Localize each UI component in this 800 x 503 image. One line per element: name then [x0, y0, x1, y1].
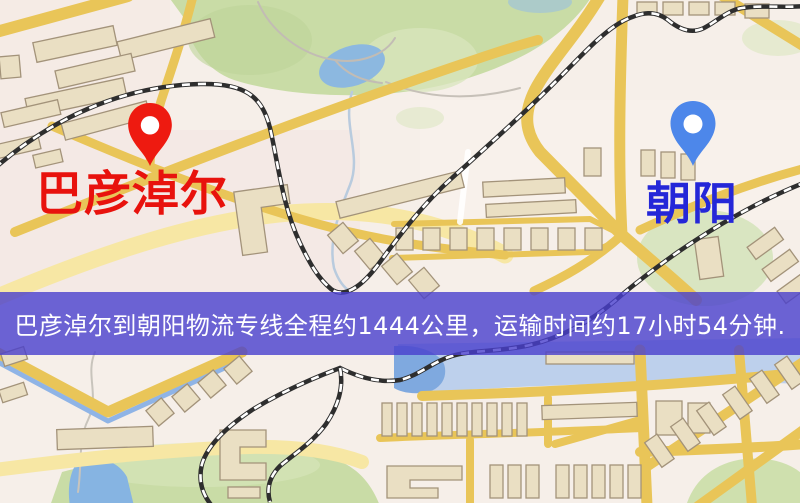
- blue-pin-icon: [669, 100, 717, 168]
- origin-city-label: 巴彦淖尔: [36, 171, 228, 218]
- map-canvas[interactable]: 巴彦淖尔 朝阳 巴彦淖尔到朝阳物流专线全程约1444公里，运输时间约17小时54…: [0, 0, 800, 503]
- destination-marker[interactable]: [669, 100, 717, 172]
- route-info-banner: 巴彦淖尔到朝阳物流专线全程约1444公里，运输时间约17小时54分钟.: [0, 292, 800, 355]
- origin-marker[interactable]: [126, 102, 174, 172]
- destination-city-label: 朝阳: [646, 181, 738, 226]
- route-info-text: 巴彦淖尔到朝阳物流专线全程约1444公里，运输时间约17小时54分钟.: [14, 306, 785, 341]
- red-pin-icon: [126, 102, 174, 168]
- map-artwork: [0, 0, 800, 503]
